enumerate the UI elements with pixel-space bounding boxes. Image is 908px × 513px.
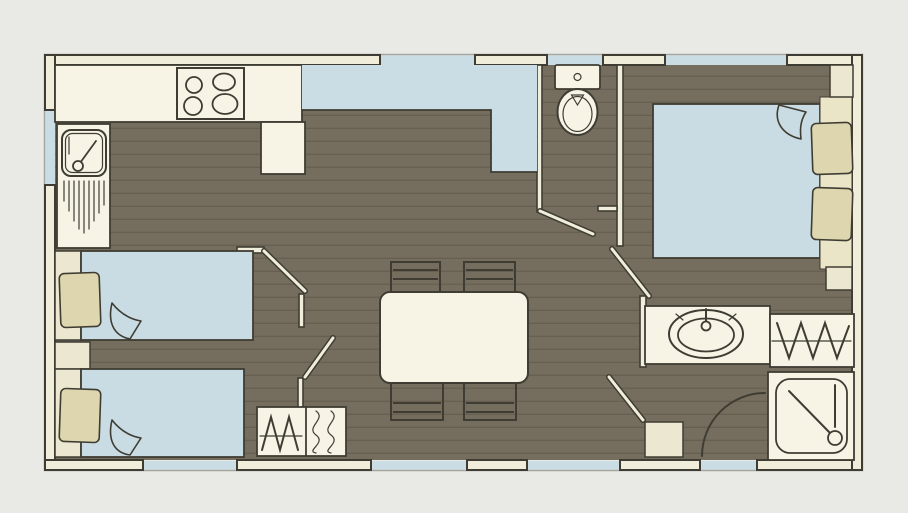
floor-plan-diagram: [0, 0, 908, 513]
wall-segment: [603, 55, 665, 65]
wall-segment: [237, 460, 371, 470]
hob-icon: [177, 68, 244, 119]
wall-segment: [298, 378, 303, 409]
window-opening: [547, 56, 603, 66]
nightstand: [826, 267, 852, 290]
nightstand: [55, 342, 90, 369]
floor-plan-svg: [0, 0, 908, 513]
wc-room: [555, 65, 600, 135]
wall-segment: [620, 460, 700, 470]
kitchen-sink-icon: [57, 124, 110, 248]
wall-segment: [45, 55, 380, 65]
wall-segment: [617, 65, 623, 246]
pillow-icon: [59, 388, 101, 442]
washbasin-icon: [645, 306, 770, 364]
pillow-icon: [811, 187, 853, 240]
window-opening: [380, 56, 475, 66]
wall-segment: [757, 460, 862, 470]
wall-segment: [475, 55, 547, 65]
wardrobe-icon: [257, 407, 346, 456]
wall-segment: [45, 460, 143, 470]
wall-segment: [598, 206, 617, 211]
fridge-unit: [261, 122, 305, 174]
nightstand: [830, 65, 853, 97]
wall-segment: [537, 65, 542, 212]
window-opening: [700, 461, 757, 470]
wall-segment: [45, 55, 55, 110]
window-opening: [665, 56, 787, 66]
window-opening: [46, 110, 56, 185]
shower-icon: [768, 372, 854, 460]
toilet-icon: [555, 65, 600, 135]
wall-segment: [467, 460, 527, 470]
wall-segment: [45, 185, 55, 470]
pillow-icon: [811, 122, 853, 174]
wardrobe-icon: [770, 314, 854, 367]
dining-table: [380, 292, 528, 383]
single-bed: [81, 369, 244, 457]
cabinet: [645, 422, 683, 457]
window-opening: [527, 461, 620, 470]
single-bed: [81, 251, 253, 340]
window-opening: [371, 461, 467, 470]
wall-segment: [787, 55, 862, 65]
window-opening: [143, 461, 237, 470]
pillow-icon: [59, 272, 101, 327]
wall-segment: [299, 294, 304, 327]
